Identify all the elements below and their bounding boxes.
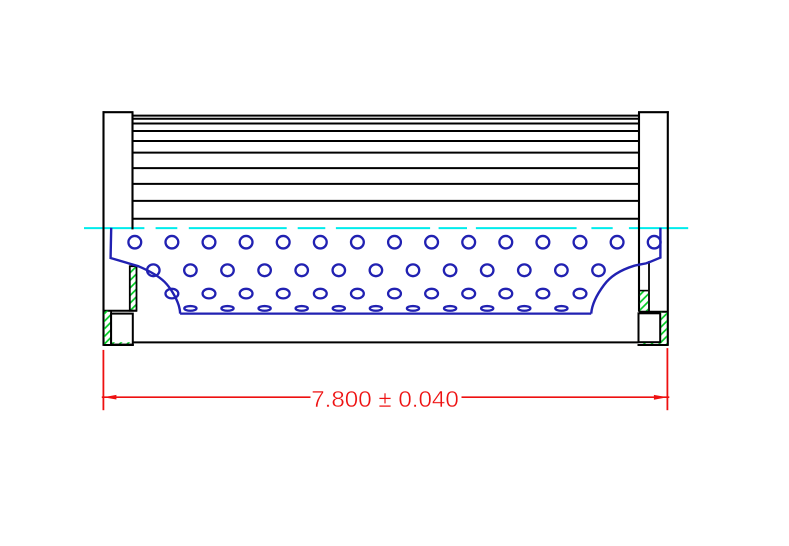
svg-text:7.800 ± 0.040: 7.800 ± 0.040 bbox=[311, 386, 459, 412]
